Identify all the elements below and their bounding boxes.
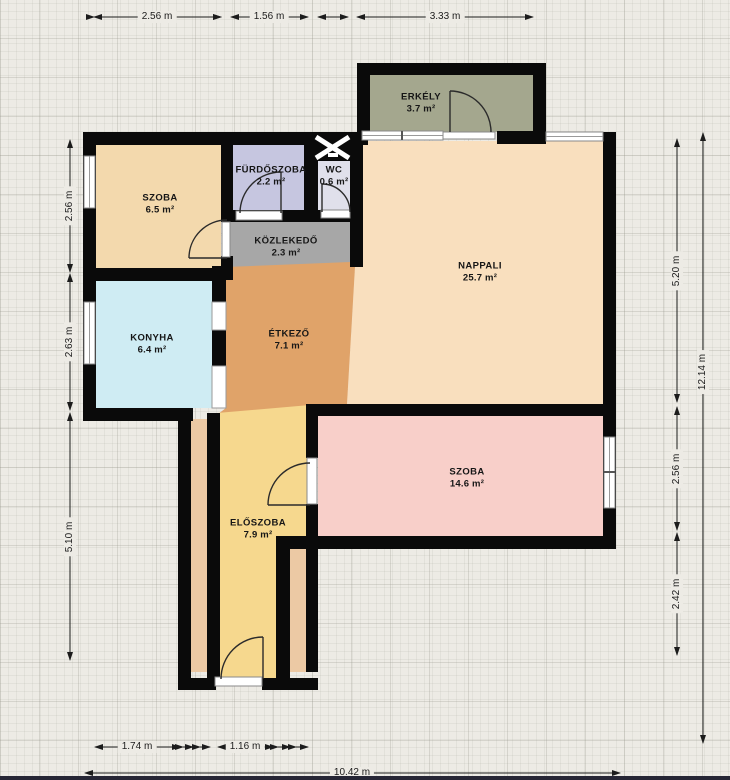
sill-wc-door [321, 210, 350, 218]
room-szoba-2[interactable] [318, 416, 603, 536]
window-szoba2-right[interactable] [604, 437, 615, 508]
dim-top-3: 3.33 m [426, 11, 465, 23]
wall-konyha-etkezo-1 [212, 266, 226, 302]
room-furdoszoba[interactable] [233, 145, 304, 210]
wall-szoba-konyha [83, 268, 223, 281]
wall-bottom-left [178, 678, 216, 690]
wall-corridor-right-inner [306, 549, 318, 672]
plan-canvas [0, 0, 730, 780]
room-nappali[interactable] [347, 141, 603, 404]
wall-corridor-left-outer [178, 408, 191, 690]
dim-top-2: 1.56 m [250, 11, 289, 23]
wall-corridor-right-outer [276, 549, 290, 690]
dim-bottom-1: 1.74 m [118, 741, 157, 753]
wall-balcony-right [533, 63, 546, 133]
dim-left-3: 5.10 m [64, 518, 76, 557]
sill-entrance-door [215, 677, 262, 686]
wall-szoba2-left-a [306, 404, 318, 458]
wall-cavity-left [191, 419, 207, 672]
wall-konyha-bottom [83, 408, 193, 421]
dim-top-1: 2.56 m [138, 11, 177, 23]
shaft-icon [313, 134, 352, 161]
window-nappali-top[interactable] [546, 132, 603, 141]
dim-right-2: 2.56 m [671, 450, 683, 489]
floor-plan: SZOBA6.5 m² FÜRDŐSZOBA2.2 m² WC0.6 m² ER… [0, 0, 730, 780]
wall-szoba2-top [306, 404, 616, 416]
window-balcony-under[interactable] [362, 131, 443, 140]
wall-balcony-top [357, 63, 546, 75]
window-szoba1-left[interactable] [84, 156, 95, 208]
window-konyha-left[interactable] [84, 302, 95, 364]
sill-szoba2-door [307, 458, 317, 504]
room-erkely[interactable] [370, 75, 533, 132]
dim-left-2: 2.63 m [64, 323, 76, 362]
room-szoba-1[interactable] [96, 145, 221, 268]
wall-szoba2-bottom [276, 536, 616, 549]
sill-szoba1-door [222, 222, 230, 257]
room-konyha[interactable] [96, 281, 212, 408]
wall-corridor-left-inner [207, 413, 220, 678]
wall-opening-2 [212, 366, 226, 408]
wall-konyha-etkezo-2 [212, 330, 226, 366]
dim-bottom-2: 1.16 m [226, 741, 265, 753]
bottom-edge-bar [0, 776, 730, 780]
dim-right-3: 2.42 m [671, 575, 683, 614]
dim-right-1: 5.20 m [671, 252, 683, 291]
wall-bottom-right [262, 678, 318, 690]
wall-cavity-right [290, 549, 306, 672]
sill-balcony-door [443, 132, 495, 139]
dim-left-1: 2.56 m [64, 187, 76, 226]
room-etkezo[interactable] [218, 262, 355, 414]
wall-opening-1 [212, 302, 226, 330]
sill-furdo-door [236, 211, 282, 220]
dim-right-total: 12.14 m [697, 350, 709, 394]
